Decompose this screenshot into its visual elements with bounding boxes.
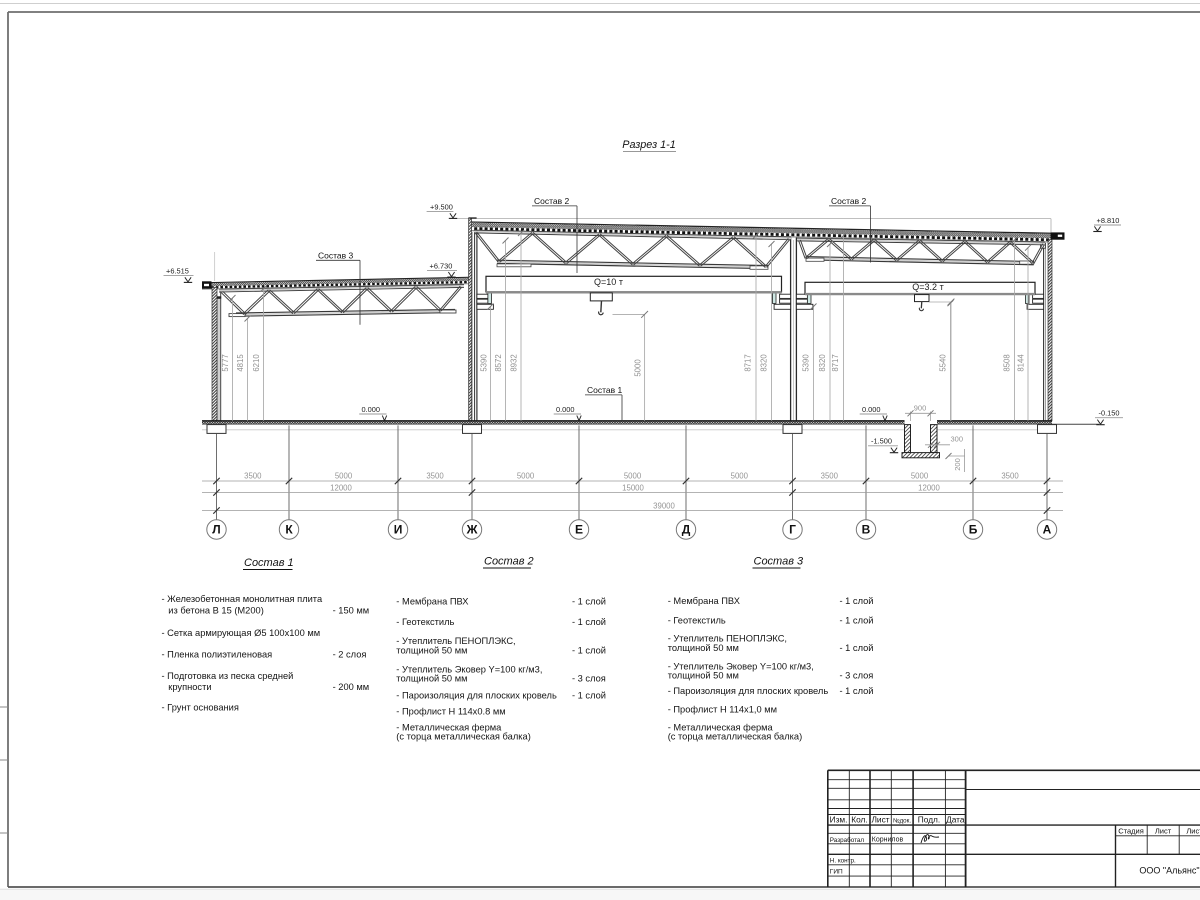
svg-text:толщиной 50 мм: толщиной 50 мм xyxy=(396,646,467,656)
svg-text:Стадия: Стадия xyxy=(1118,826,1144,835)
svg-text:- 150 мм: - 150 мм xyxy=(333,605,370,615)
svg-text:3500: 3500 xyxy=(1001,472,1019,481)
svg-text:6210: 6210 xyxy=(252,354,261,372)
svg-text:300: 300 xyxy=(951,435,964,444)
svg-text:-1.500: -1.500 xyxy=(871,437,892,446)
svg-text:Состав 2: Состав 2 xyxy=(484,556,534,568)
svg-text:А: А xyxy=(1043,523,1052,537)
svg-text:Лист: Лист xyxy=(1186,826,1200,835)
svg-text:Б: Б xyxy=(969,523,978,537)
svg-text:Корнилов: Корнилов xyxy=(872,837,904,844)
svg-text:8320: 8320 xyxy=(818,354,827,372)
svg-text:5777: 5777 xyxy=(221,354,230,371)
svg-text:- 200 мм: - 200 мм xyxy=(333,682,370,692)
svg-text:15000: 15000 xyxy=(622,483,644,492)
svg-text:толщиной 50 мм: толщиной 50 мм xyxy=(668,671,739,681)
svg-text:№док.: №док. xyxy=(893,817,911,824)
svg-text:- Мембрана ПВХ: - Мембрана ПВХ xyxy=(668,596,740,606)
svg-text:+6.730: +6.730 xyxy=(430,261,453,270)
svg-text:3500: 3500 xyxy=(426,472,444,481)
svg-text:Разрез 1-1: Разрез 1-1 xyxy=(622,139,676,151)
svg-text:5390: 5390 xyxy=(480,354,489,372)
svg-text:- Сетка армирующая Ø5 100x100: - Сетка армирующая Ø5 100x100 мм xyxy=(162,628,321,638)
svg-text:Ж: Ж xyxy=(466,523,478,537)
svg-text:толщиной 50 мм: толщиной 50 мм xyxy=(668,643,739,653)
svg-text:5000: 5000 xyxy=(634,359,643,377)
svg-text:+9.500: +9.500 xyxy=(430,202,453,211)
svg-text:Изм.: Изм. xyxy=(830,815,848,825)
svg-text:Состав 1: Состав 1 xyxy=(587,385,623,395)
svg-text:5000: 5000 xyxy=(517,472,535,481)
svg-text:Подл.: Подл. xyxy=(918,815,940,825)
svg-text:- Подготовка из песка средней: - Подготовка из песка средней xyxy=(162,671,294,681)
svg-text:из бетона В 15 (М200): из бетона В 15 (М200) xyxy=(168,605,263,615)
svg-text:Состав 3: Состав 3 xyxy=(318,251,354,261)
svg-text:200: 200 xyxy=(953,458,962,471)
svg-text:0.000: 0.000 xyxy=(556,405,575,414)
svg-text:5000: 5000 xyxy=(911,472,929,481)
svg-text:8932: 8932 xyxy=(510,354,519,371)
svg-text:Д: Д xyxy=(682,523,691,537)
svg-text:ГИП: ГИП xyxy=(830,869,843,876)
svg-text:- 1 слой: - 1 слой xyxy=(572,617,606,627)
svg-text:Лист: Лист xyxy=(1155,826,1172,835)
svg-text:- 1 слой: - 1 слой xyxy=(840,686,874,696)
svg-text:Q=3.2 т: Q=3.2 т xyxy=(912,282,943,292)
svg-text:И: И xyxy=(394,523,403,537)
svg-text:3500: 3500 xyxy=(821,472,839,481)
svg-text:(с торца металлическая балка): (с торца металлическая балка) xyxy=(668,732,803,742)
svg-text:8508: 8508 xyxy=(1003,354,1012,371)
svg-text:3500: 3500 xyxy=(244,472,262,481)
svg-text:5390: 5390 xyxy=(802,354,811,372)
svg-text:+8.810: +8.810 xyxy=(1097,216,1120,225)
svg-text:Состав 3: Состав 3 xyxy=(754,556,805,568)
svg-text:Q=10 т: Q=10 т xyxy=(594,277,623,287)
svg-text:8717: 8717 xyxy=(744,354,753,371)
svg-text:(с торца металлическая балка): (с торца металлическая балка) xyxy=(396,732,531,742)
svg-text:5000: 5000 xyxy=(731,472,749,481)
svg-text:8717: 8717 xyxy=(831,354,840,371)
svg-text:Кол.: Кол. xyxy=(851,815,867,825)
svg-text:5000: 5000 xyxy=(624,472,642,481)
svg-text:Разработал: Разработал xyxy=(830,836,865,844)
svg-text:5540: 5540 xyxy=(939,354,948,372)
svg-text:Г: Г xyxy=(789,523,796,537)
svg-text:- 1 слой: - 1 слой xyxy=(572,597,606,607)
svg-text:+6.515: +6.515 xyxy=(166,266,189,275)
svg-text:- 1 слой: - 1 слой xyxy=(840,596,874,606)
svg-text:- Геотекстиль: - Геотекстиль xyxy=(668,616,726,626)
svg-text:- 2 слоя: - 2 слоя xyxy=(333,650,367,660)
svg-text:Состав 1: Состав 1 xyxy=(244,557,294,569)
svg-text:Состав 2: Состав 2 xyxy=(534,196,570,206)
svg-text:- Утеплитель ПЕНОПЛЭКС,: - Утеплитель ПЕНОПЛЭКС, xyxy=(396,636,515,646)
svg-text:8572: 8572 xyxy=(494,354,503,371)
svg-text:-0.150: -0.150 xyxy=(1099,409,1120,418)
svg-text:- Геотекстиль: - Геотекстиль xyxy=(396,617,454,627)
svg-text:- 1 слой: - 1 слой xyxy=(840,643,874,653)
svg-text:- Пароизоляция для плоских кро: - Пароизоляция для плоских кровель xyxy=(396,691,557,701)
svg-text:- 1 слой: - 1 слой xyxy=(572,646,606,656)
svg-text:4815: 4815 xyxy=(236,354,245,372)
svg-text:900: 900 xyxy=(914,404,927,413)
svg-text:- 3 слоя: - 3 слоя xyxy=(840,671,874,681)
svg-text:- Мембрана ПВХ: - Мембрана ПВХ xyxy=(396,597,468,607)
svg-text:Л: Л xyxy=(212,523,220,537)
svg-text:ООО "Альянс": ООО "Альянс" xyxy=(1139,865,1199,875)
svg-text:0.000: 0.000 xyxy=(362,405,381,414)
svg-text:Лист: Лист xyxy=(871,815,889,825)
svg-text:8144: 8144 xyxy=(1017,354,1026,372)
svg-text:- Грунт основания: - Грунт основания xyxy=(162,703,239,713)
svg-text:5000: 5000 xyxy=(335,472,353,481)
svg-text:- Профлист Н 114x0.8 мм: - Профлист Н 114x0.8 мм xyxy=(396,707,505,717)
svg-text:- Железобетонная монолитная п: - Железобетонная монолитная плита xyxy=(162,594,323,604)
svg-text:- 1 слой: - 1 слой xyxy=(572,691,606,701)
svg-text:- 3 слоя: - 3 слоя xyxy=(572,674,606,684)
svg-text:Е: Е xyxy=(575,523,583,537)
svg-text:- Пленка полиэтиленовая: - Пленка полиэтиленовая xyxy=(162,650,273,660)
svg-text:толщиной 50 мм: толщиной 50 мм xyxy=(396,674,467,684)
svg-text:- 1 слой: - 1 слой xyxy=(840,616,874,626)
svg-text:- Утеплитель ПЕНОПЛЭКС,: - Утеплитель ПЕНОПЛЭКС, xyxy=(668,634,787,644)
svg-text:12000: 12000 xyxy=(330,483,352,492)
svg-text:0.000: 0.000 xyxy=(862,405,881,414)
svg-text:К: К xyxy=(285,523,293,537)
svg-text:12000: 12000 xyxy=(918,483,940,492)
svg-text:- Профлист Н 114x1,0 мм: - Профлист Н 114x1,0 мм xyxy=(668,705,777,715)
svg-text:Состав 2: Состав 2 xyxy=(831,196,867,206)
svg-text:Н. контр.: Н. контр. xyxy=(830,858,856,865)
svg-text:- Пароизоляция для плоских кро: - Пароизоляция для плоских кровель xyxy=(668,686,829,696)
svg-text:В: В xyxy=(862,523,871,537)
svg-text:крупности: крупности xyxy=(168,682,211,692)
svg-text:Дата: Дата xyxy=(946,815,965,825)
svg-text:39000: 39000 xyxy=(653,501,675,510)
svg-text:8320: 8320 xyxy=(760,354,769,372)
